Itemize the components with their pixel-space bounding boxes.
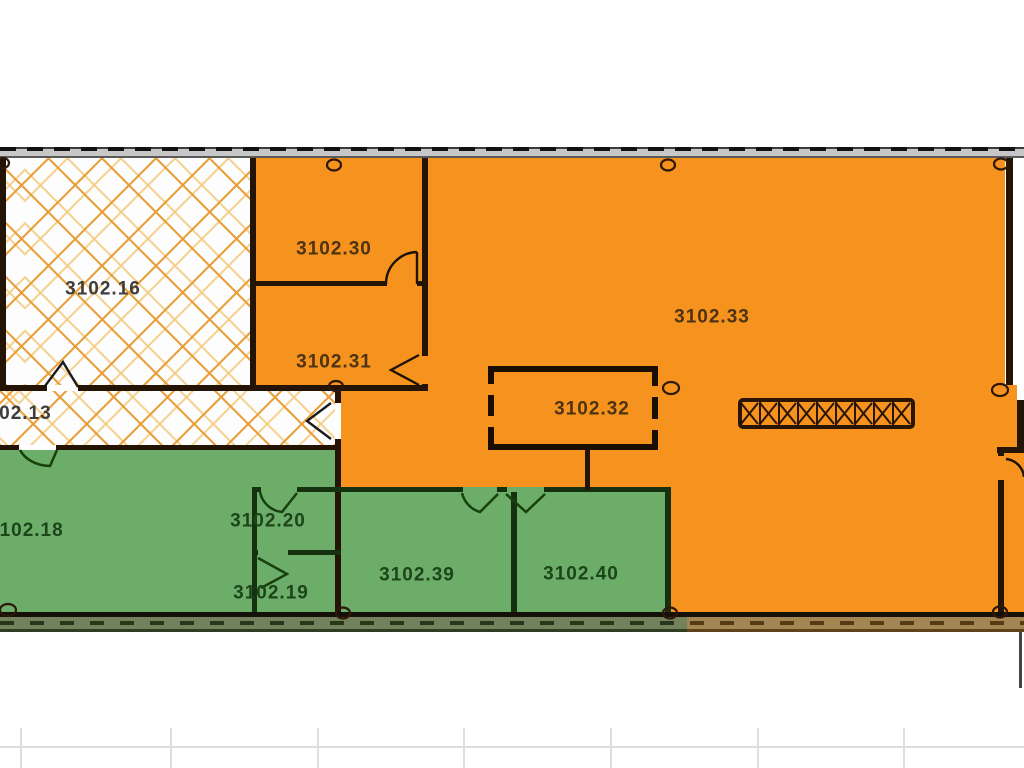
wall-opening <box>1017 385 1024 400</box>
door-opening <box>387 281 417 286</box>
wall-segment <box>1006 147 1013 385</box>
room-3102-39[interactable] <box>338 490 515 612</box>
door-opening <box>463 487 497 492</box>
door-opening <box>652 386 658 397</box>
wall-segment <box>511 487 517 612</box>
sheet-grid-line <box>170 728 172 768</box>
door-opening <box>47 385 78 391</box>
room-label-3102-13: 3102.13 <box>0 404 52 423</box>
door-opening <box>335 403 341 439</box>
room-label-3102-39: 3102.39 <box>379 566 455 585</box>
door-opening <box>652 419 658 430</box>
wall-tint-green <box>0 617 687 632</box>
wall-tint-orange <box>687 617 1024 632</box>
wall-segment <box>0 147 6 390</box>
room-3102-40[interactable] <box>515 490 670 612</box>
sheet-grid-line <box>0 746 1024 748</box>
wall-segment <box>1017 400 1024 447</box>
sheet-grid-line <box>903 728 905 768</box>
sheet-grid-line <box>757 728 759 768</box>
room-label-3102-31: 3102.31 <box>296 353 372 372</box>
room-label-3102-33: 3102.33 <box>674 308 750 327</box>
wall-segment <box>250 147 256 390</box>
room-3102-31[interactable] <box>252 286 428 390</box>
room-label-3102-40: 3102.40 <box>543 565 619 584</box>
room-label-3102-20: 3102.20 <box>230 512 306 531</box>
sheet-grid-line <box>463 728 465 768</box>
sheet-grid-line <box>20 728 22 768</box>
room-3102-16[interactable] <box>6 158 252 386</box>
door-opening <box>261 487 297 492</box>
exterior-gap-right <box>1012 158 1024 385</box>
room-label-3102-30: 3102.30 <box>296 240 372 259</box>
exterior-wall-north <box>0 147 1024 158</box>
exterior-wall-south <box>0 617 1024 632</box>
door-opening <box>488 416 494 427</box>
room-label-3102-16: 3102.16 <box>65 280 141 299</box>
room-label-3102-32: 3102.32 <box>554 400 630 419</box>
room-3102-30[interactable] <box>252 158 428 286</box>
door-opening <box>258 550 288 555</box>
door-opening <box>19 445 56 450</box>
floor-plan-canvas: 3102.16 3102.30 3102.31 3102.33 3102.32 … <box>0 0 1024 768</box>
door-opening <box>422 356 428 384</box>
sheet-grid-line <box>317 728 319 768</box>
wall-segment <box>252 487 671 492</box>
door-opening <box>488 384 494 395</box>
wall-segment <box>422 147 428 390</box>
wall-segment <box>585 449 590 490</box>
wall-segment <box>665 487 671 612</box>
sheet-grid-line <box>610 728 612 768</box>
room-label-3102-19: 3102.19 <box>233 584 309 603</box>
door-opening <box>998 456 1004 480</box>
sheet-edge-line <box>1019 632 1022 688</box>
door-opening <box>507 487 544 492</box>
room-label-3102-18: 3102.18 <box>0 521 64 540</box>
